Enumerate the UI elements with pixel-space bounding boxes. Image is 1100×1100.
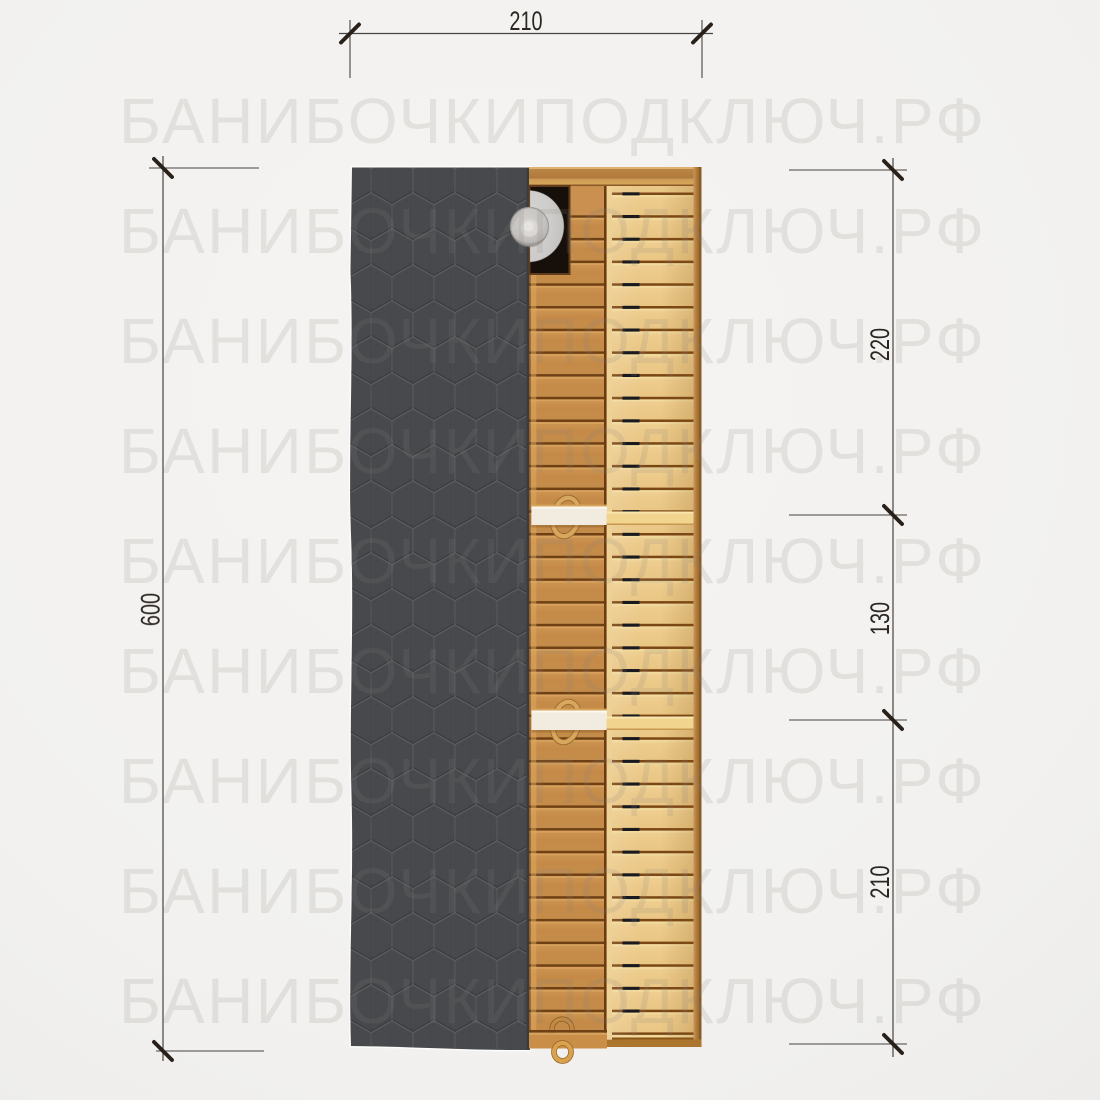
svg-text:130: 130 [865, 602, 894, 635]
svg-text:600: 600 [136, 593, 165, 626]
svg-text:БАНИБОЧКИПОДКЛЮЧ.РФ: БАНИБОЧКИПОДКЛЮЧ.РФ [119, 965, 986, 1037]
svg-text:БАНИБОЧКИПОДКЛЮЧ.РФ: БАНИБОЧКИПОДКЛЮЧ.РФ [119, 85, 986, 157]
svg-text:БАНИБОЧКИПОДКЛЮЧ.РФ: БАНИБОЧКИПОДКЛЮЧ.РФ [119, 635, 986, 707]
svg-text:210: 210 [509, 6, 542, 35]
svg-text:БАНИБОЧКИПОДКЛЮЧ.РФ: БАНИБОЧКИПОДКЛЮЧ.РФ [119, 525, 986, 597]
svg-text:БАНИБОЧКИПОДКЛЮЧ.РФ: БАНИБОЧКИПОДКЛЮЧ.РФ [119, 195, 986, 267]
svg-text:БАНИБОЧКИПОДКЛЮЧ.РФ: БАНИБОЧКИПОДКЛЮЧ.РФ [119, 855, 986, 927]
svg-text:БАНИБОЧКИПОДКЛЮЧ.РФ: БАНИБОЧКИПОДКЛЮЧ.РФ [119, 305, 986, 377]
svg-text:БАНИБОЧКИПОДКЛЮЧ.РФ: БАНИБОЧКИПОДКЛЮЧ.РФ [119, 745, 986, 817]
svg-text:БАНИБОЧКИПОДКЛЮЧ.РФ: БАНИБОЧКИПОДКЛЮЧ.РФ [119, 415, 986, 487]
